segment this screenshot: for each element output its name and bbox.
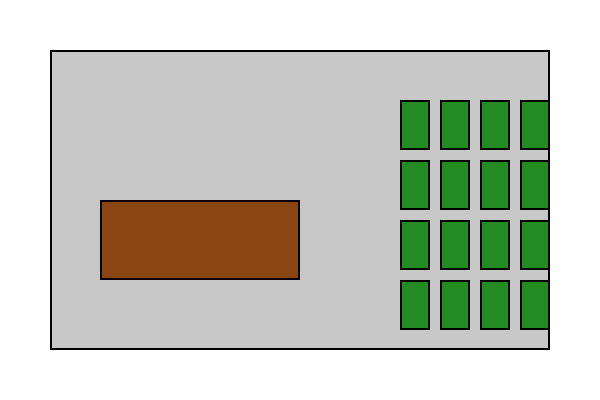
- green-cell: [400, 160, 430, 210]
- green-cell: [480, 100, 510, 150]
- canvas: [0, 0, 600, 400]
- green-cell: [400, 220, 430, 270]
- green-cell: [440, 100, 470, 150]
- green-cell: [400, 100, 430, 150]
- green-cell: [480, 160, 510, 210]
- green-cell: [520, 280, 550, 330]
- green-cell: [440, 160, 470, 210]
- green-cell: [480, 280, 510, 330]
- green-cell: [440, 220, 470, 270]
- green-cell: [480, 220, 510, 270]
- green-cell: [400, 280, 430, 330]
- brown-rectangle: [100, 200, 300, 280]
- green-cell: [520, 100, 550, 150]
- green-cell: [520, 220, 550, 270]
- green-cell: [440, 280, 470, 330]
- green-cell: [520, 160, 550, 210]
